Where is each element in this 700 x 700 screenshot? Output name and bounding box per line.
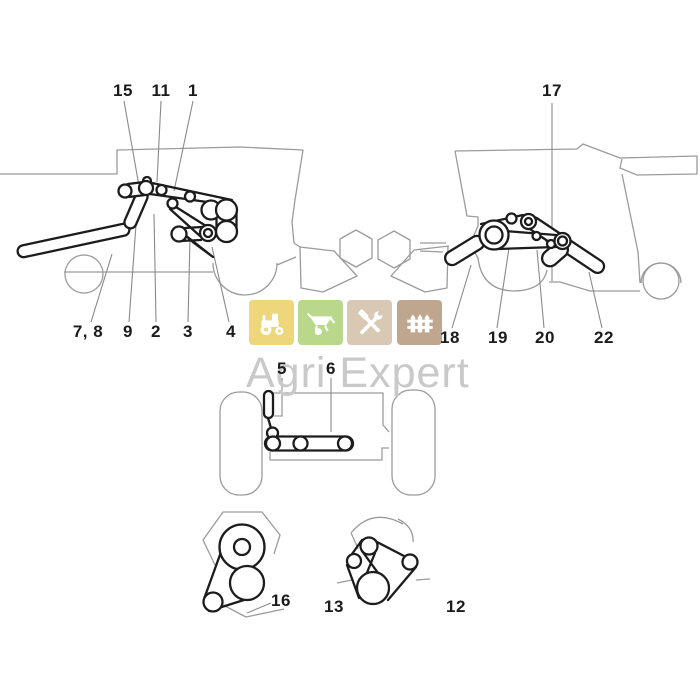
part-label-20: 20: [535, 328, 555, 348]
part-label-11: 11: [152, 81, 171, 101]
part-label-16: 16: [271, 591, 291, 611]
tractor-icon: [249, 300, 294, 345]
part-label-9: 9: [123, 322, 133, 342]
tools-icon: [347, 300, 392, 345]
part-label-15: 15: [113, 81, 133, 101]
part-label-4: 4: [226, 322, 236, 342]
part-label-1: 1: [188, 81, 198, 101]
part-label-6: 6: [326, 359, 336, 379]
part-label-12: 12: [446, 597, 466, 617]
part-label-22: 22: [594, 328, 614, 348]
parts-diagram-image: Agri Expert 15 11 1 17 7, 8 9 2 3 4 18 1…: [0, 0, 700, 700]
part-label-5: 5: [277, 359, 287, 379]
part-label-3: 3: [183, 322, 193, 342]
part-label-13: 13: [324, 597, 344, 617]
fence-icon: [397, 300, 442, 345]
part-label-7-8: 7, 8: [73, 322, 103, 342]
part-label-19: 19: [488, 328, 508, 348]
part-label-2: 2: [151, 322, 161, 342]
part-label-18: 18: [440, 328, 460, 348]
wheelbarrow-icon: [298, 300, 343, 345]
part-label-17: 17: [542, 81, 562, 101]
